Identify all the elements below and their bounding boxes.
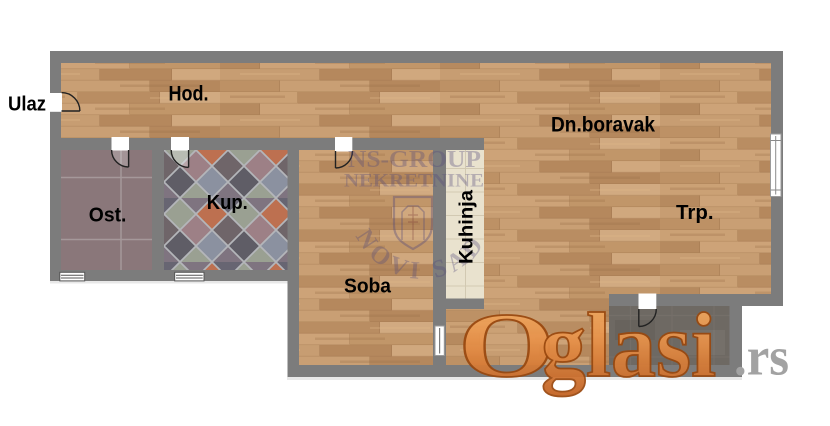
svg-text:Kup.: Kup. xyxy=(207,192,248,214)
svg-text:Soba: Soba xyxy=(344,276,392,298)
svg-text:NS-GROUP: NS-GROUP xyxy=(348,147,481,173)
svg-text:NEKRETNINE: NEKRETNINE xyxy=(344,171,484,192)
svg-text:Dn.boravak: Dn.boravak xyxy=(551,114,655,137)
svg-text:.rs: .rs xyxy=(734,327,789,387)
svg-text:Ulaz: Ulaz xyxy=(8,93,46,115)
svg-text:Hod.: Hod. xyxy=(169,83,209,106)
svg-text:Ost.: Ost. xyxy=(89,205,127,227)
svg-text:Kuhinja: Kuhinja xyxy=(456,190,478,264)
svg-text:glasi: glasi xyxy=(541,294,716,396)
svg-text:Trp.: Trp. xyxy=(676,202,714,224)
